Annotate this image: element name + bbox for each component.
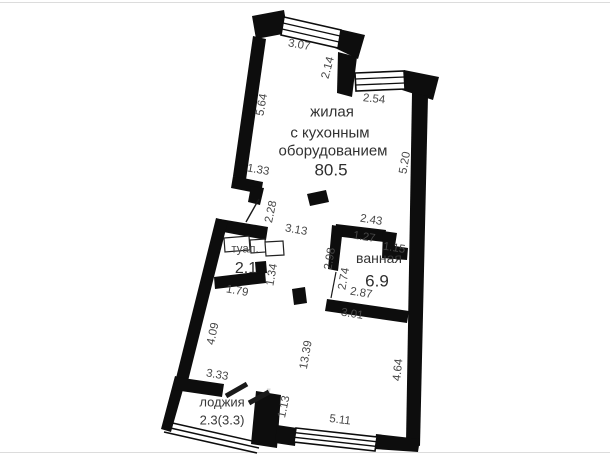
dim-2-54: 2.54 [362,93,385,107]
floor-plan-canvas: t [0,0,610,460]
main-room-name-line2: с кухонным [290,126,369,141]
column-lower [292,287,307,305]
wall-left-lower [176,218,228,381]
main-room-name-line3: оборудованием [278,144,387,159]
toilet-area: 2.1 [235,261,257,277]
main-room-area: 80.5 [314,162,347,179]
wall-right [406,93,428,446]
dim-4-64: 4.64 [392,358,406,381]
wall-bottom-left-seg [275,425,297,446]
window-bottom [294,428,377,451]
wall-214 [337,52,357,97]
window-upper-right [355,71,405,91]
column-upper [307,190,329,206]
dim-5-11: 5.11 [329,414,352,428]
loggia-glazing-line [164,432,257,453]
wall-bathroom-bottom [325,299,409,323]
loggia-area: 2.3(3.3) [200,414,245,427]
fixture-wc [265,241,284,256]
main-room-name-line1: жилая [310,105,354,120]
loggia-glazing-line [166,427,259,448]
bathroom-area: 6.9 [365,273,389,290]
toilet-name: туал. [231,244,258,256]
loggia-name: лоджия [199,396,244,409]
bathroom-door-opening [331,272,336,298]
